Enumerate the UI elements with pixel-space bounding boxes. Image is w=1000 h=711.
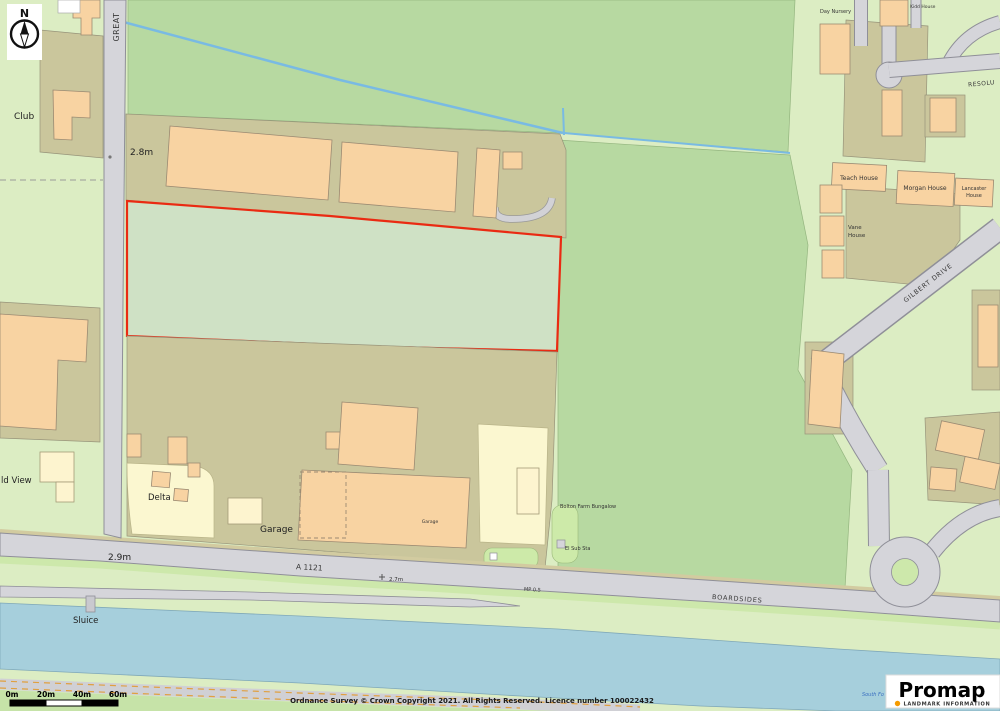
compass-rose: N bbox=[7, 4, 42, 60]
sluice-label: Sluice bbox=[73, 616, 98, 626]
road bbox=[878, 470, 879, 546]
building bbox=[339, 142, 458, 212]
scale-label: 40m bbox=[73, 690, 91, 699]
building bbox=[978, 305, 998, 367]
building bbox=[820, 24, 850, 74]
delta-shed bbox=[174, 488, 189, 501]
teach-house-label: Teach House bbox=[839, 175, 878, 182]
north-label: N bbox=[20, 7, 29, 20]
building bbox=[929, 467, 957, 491]
building bbox=[56, 482, 74, 502]
building bbox=[820, 216, 844, 246]
sluice-structure bbox=[86, 596, 95, 612]
spot-height-marker bbox=[108, 155, 111, 158]
delta-label: Delta bbox=[148, 493, 171, 503]
morgan-house-label: Morgan House bbox=[903, 185, 947, 192]
building bbox=[127, 434, 141, 457]
building bbox=[168, 437, 187, 464]
building bbox=[820, 185, 842, 213]
promap-logo: Promap LANDMARK INFORMATION bbox=[886, 675, 1000, 708]
scale-segment bbox=[10, 700, 46, 706]
lancaster-house-label: House bbox=[966, 193, 982, 199]
map-canvas[interactable]: Club GREAT 2.8m 2.9m 2.7m MP 0.5 ld View… bbox=[0, 0, 1000, 711]
kidd-house-label: Kidd House bbox=[910, 4, 936, 10]
bungalow-building bbox=[517, 468, 539, 514]
building bbox=[188, 463, 200, 477]
scale-segment bbox=[46, 700, 82, 706]
map-screenshot: Club GREAT 2.8m 2.9m 2.7m MP 0.5 ld View… bbox=[0, 0, 1000, 711]
logo-dot-icon bbox=[895, 701, 900, 706]
field-view-house bbox=[40, 452, 74, 482]
scale-label: 20m bbox=[37, 690, 55, 699]
small-structure bbox=[490, 553, 497, 560]
vane-house-label: House bbox=[848, 233, 866, 239]
farm-bungalow-label: Bolton Farm Bungalow bbox=[560, 504, 616, 510]
garage-building-label: Garage bbox=[422, 519, 439, 525]
club-label: Club bbox=[14, 112, 34, 122]
garage-building bbox=[298, 470, 470, 548]
building bbox=[882, 90, 902, 136]
vane-house-label: Vane bbox=[848, 225, 862, 231]
scale-segment bbox=[82, 700, 118, 706]
great-road-label: GREAT bbox=[112, 12, 121, 41]
garage-area-label: Garage bbox=[260, 525, 293, 535]
logo-text: Promap bbox=[899, 678, 986, 702]
el-sub-sta-label: El Sub Sta bbox=[565, 546, 590, 552]
field-view-label: ld View bbox=[1, 476, 32, 486]
building bbox=[58, 0, 80, 13]
spot-height-label: 2.8m bbox=[130, 148, 153, 158]
building bbox=[880, 0, 908, 26]
copyright-text: Ordnance Survey © Crown Copyright 2021. … bbox=[290, 697, 654, 705]
stream-branch bbox=[563, 108, 564, 135]
road-resolution bbox=[889, 61, 1000, 70]
lancaster-house-label: Lancaster bbox=[962, 186, 987, 192]
building bbox=[338, 402, 418, 470]
building bbox=[228, 498, 262, 524]
a1121-label: A 1121 bbox=[296, 562, 323, 572]
milepost-label: MP 0.5 bbox=[524, 587, 541, 594]
building bbox=[822, 250, 844, 278]
logo-subtitle: LANDMARK INFORMATION bbox=[904, 702, 991, 708]
spot-height-label: 2.9m bbox=[108, 553, 131, 563]
scale-label: 60m bbox=[109, 690, 127, 699]
drain-name-label: South Fo bbox=[862, 692, 884, 698]
delta-shed bbox=[151, 471, 170, 488]
substation bbox=[557, 540, 565, 548]
day-nursery-label: Day Nursery bbox=[820, 9, 851, 15]
building bbox=[930, 98, 956, 132]
spot-height-label: 2.7m bbox=[389, 577, 403, 583]
attribution: Ordnance Survey © Crown Copyright 2021. … bbox=[290, 697, 654, 705]
building bbox=[503, 152, 522, 169]
roundabout-island bbox=[892, 559, 919, 586]
building bbox=[473, 148, 500, 218]
building bbox=[808, 350, 844, 428]
substation-plot bbox=[552, 505, 578, 563]
scale-label: 0m bbox=[5, 690, 18, 699]
